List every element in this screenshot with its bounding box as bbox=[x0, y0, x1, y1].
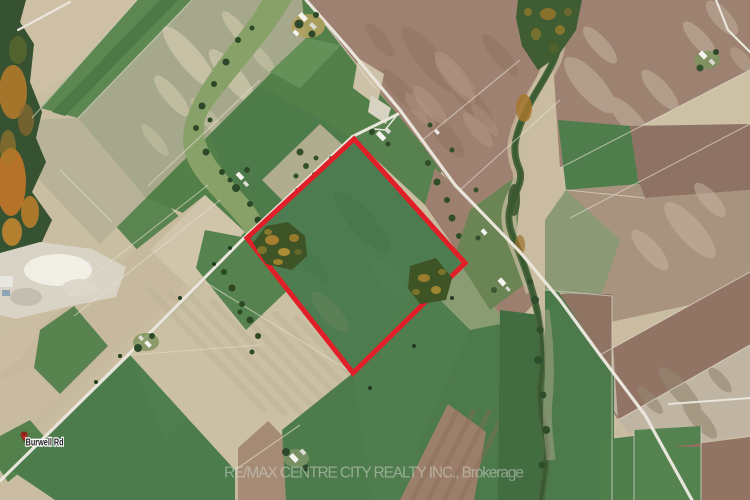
svg-text:RE/MAX CENTRE CITY REALTY INC.: RE/MAX CENTRE CITY REALTY INC., Brokerag… bbox=[224, 465, 524, 482]
svg-text:Burwell Rd: Burwell Rd bbox=[26, 438, 64, 449]
